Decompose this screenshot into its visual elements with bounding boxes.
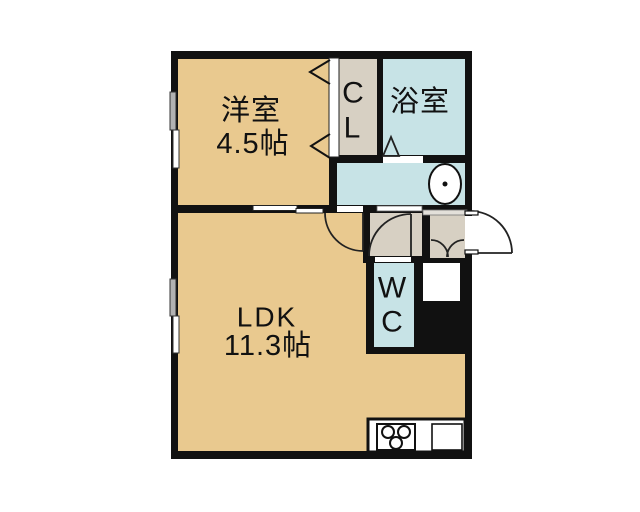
entrance-door-opening (465, 216, 472, 251)
toilet-label-line1: W (378, 272, 407, 305)
bathroom-label: 浴室 (390, 85, 450, 118)
entrance-step-threshold (423, 210, 467, 215)
sliding-door-panel-right (296, 209, 323, 214)
window-ldk-upper (170, 279, 176, 316)
ldk-size: 11.3帖 (224, 329, 312, 362)
wall-toilet-left (366, 256, 374, 354)
floorplan-canvas: 洋室 4.5帖 C L 浴室 LDK 11.3帖 W C (0, 0, 640, 512)
floorplan-drawing: 洋室 4.5帖 C L 浴室 LDK 11.3帖 W C (0, 0, 640, 512)
washbasin-drain-icon (443, 182, 448, 187)
wall-outer-right (465, 51, 472, 459)
wall-outer-top (171, 51, 472, 59)
stove-burner-icon (398, 426, 410, 438)
western-room-label: 洋室 (221, 94, 281, 127)
kitchen-sink-icon (432, 424, 462, 450)
entrance-door-jamb-top (465, 211, 478, 215)
sliding-door-panel-left (253, 206, 297, 211)
stove-burner-icon (390, 437, 402, 449)
window-western-upper (170, 92, 176, 130)
shaft-niche (423, 263, 460, 301)
ldk-washroom-opening (337, 206, 363, 212)
hall-floor (368, 212, 422, 257)
hall-threshold (377, 206, 422, 211)
closet-label-line2: L (344, 112, 361, 145)
toilet-label-line2: C (381, 306, 403, 339)
wall-washroom-left (329, 155, 337, 213)
western-room-size: 4.5帖 (216, 127, 289, 160)
entrance-door-jamb-bottom (465, 250, 478, 254)
bathroom-door-opening (383, 156, 423, 163)
closet-door-track (329, 58, 339, 157)
ldk-label: LDK (237, 302, 297, 333)
wall-closet-bath (377, 58, 383, 157)
window-western-lower (173, 130, 179, 168)
stove-burner-icon (382, 426, 394, 438)
wall-hall-entrance (422, 208, 430, 263)
closet-label-line1: C (342, 77, 364, 110)
window-ldk-lower (173, 316, 179, 353)
toilet-door-opening (375, 257, 411, 262)
entrance-door-swing-arc (470, 211, 512, 253)
